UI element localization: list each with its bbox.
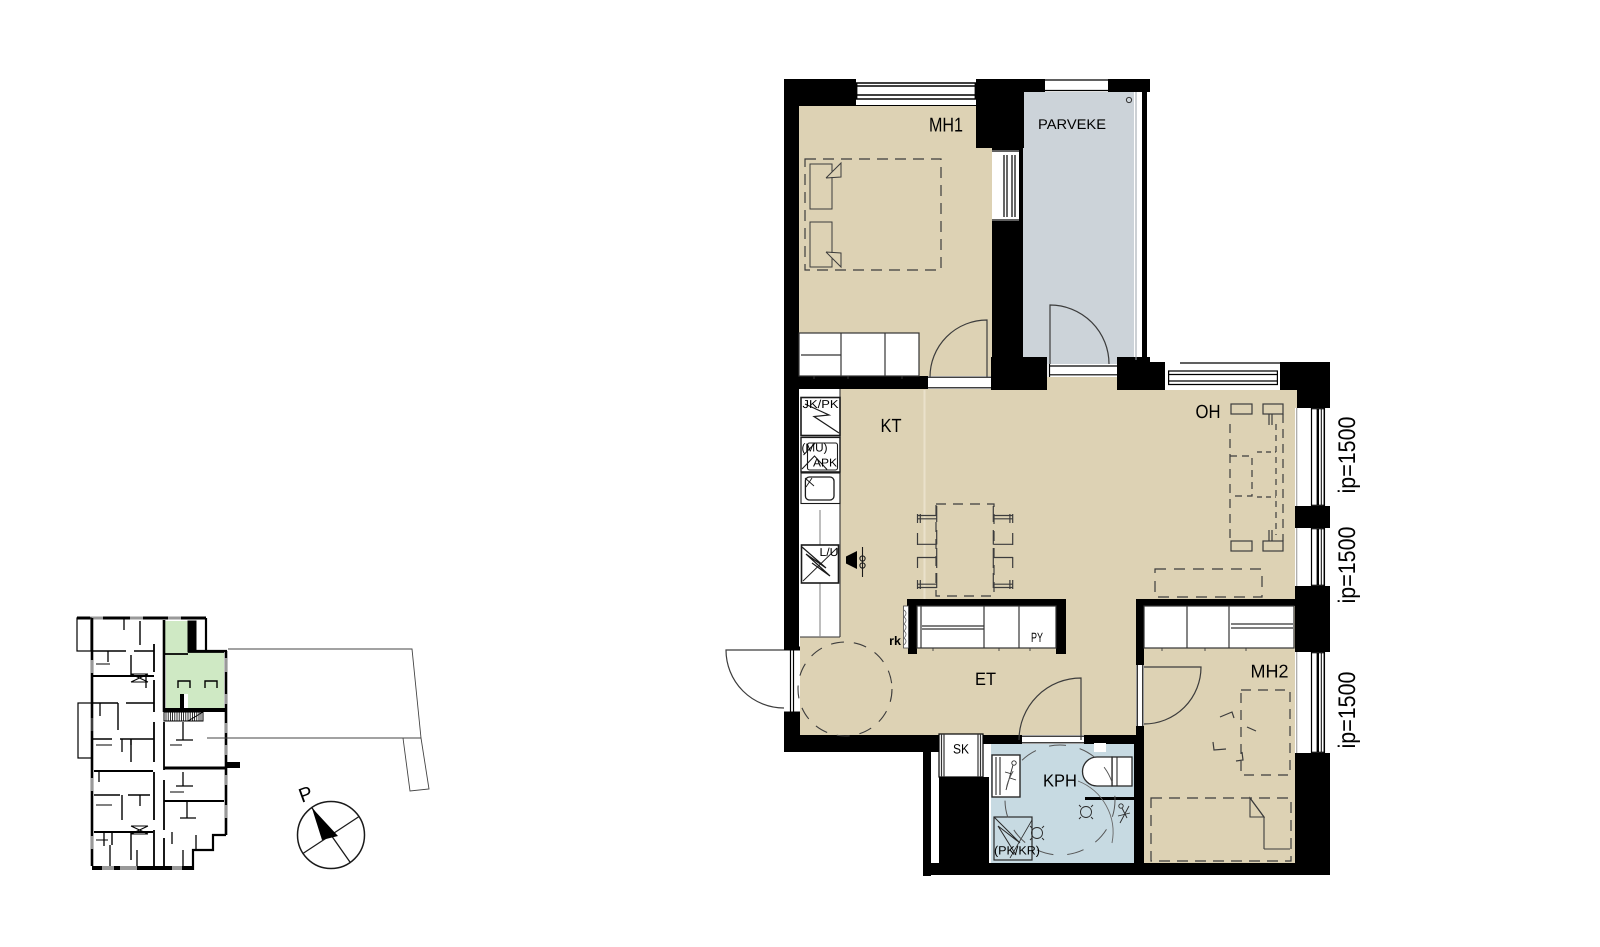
svg-text:L/U: L/U [820,547,839,559]
svg-text:JK/PK: JK/PK [803,399,839,411]
svg-text:KPH: KPH [1043,771,1077,791]
svg-text:(MU): (MU) [802,443,828,455]
svg-text:ip=1500: ip=1500 [1334,417,1361,494]
svg-text:(PK/KR): (PK/KR) [994,844,1040,858]
svg-text:ip=1500: ip=1500 [1334,527,1361,604]
svg-text:MH1: MH1 [929,115,963,137]
svg-text:OH: OH [1196,402,1221,423]
svg-text:MH2: MH2 [1251,661,1289,682]
svg-text:APK: APK [813,458,837,470]
svg-text:PARVEKE: PARVEKE [1038,116,1106,132]
svg-text:rk: rk [889,634,901,648]
svg-text:KT: KT [881,416,902,437]
svg-text:SK: SK [953,742,969,757]
svg-text:PY: PY [1031,630,1043,645]
svg-text:ET: ET [975,669,996,689]
svg-text:ip=1500: ip=1500 [1334,672,1361,749]
